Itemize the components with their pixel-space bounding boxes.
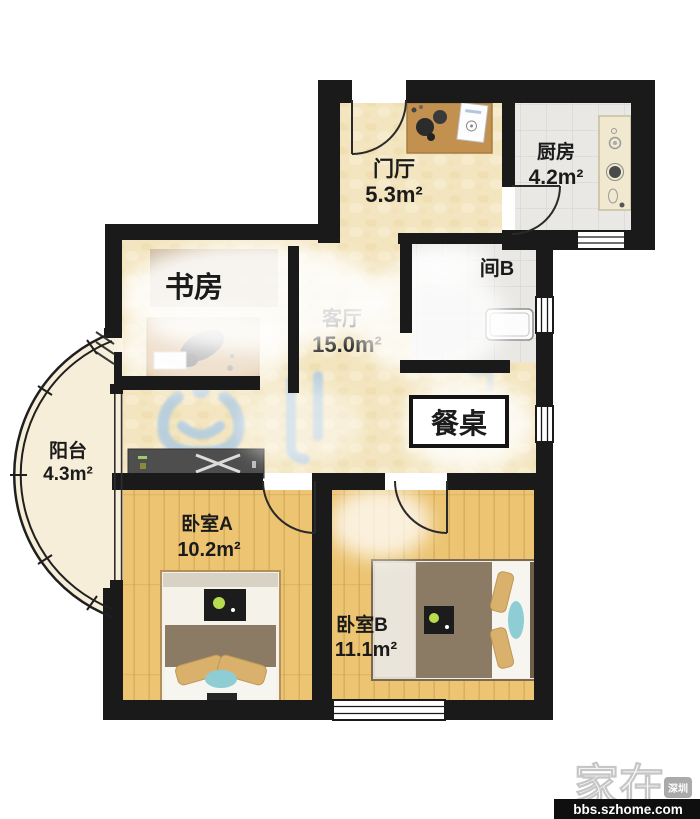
wall (631, 80, 655, 250)
kitchen-area: 4.2m² (529, 166, 584, 189)
bed-gadget (424, 606, 454, 634)
tv-stand-item (140, 463, 146, 469)
bedroom-b-label: 卧室B (336, 613, 388, 636)
dining-table-label: 餐桌 (431, 408, 487, 439)
balcony-door-stub (110, 384, 123, 394)
wall (398, 233, 504, 244)
bathroom-b-label: 间B (480, 257, 514, 280)
bed-b (372, 560, 538, 680)
kitchen-label: 厨房 (537, 140, 575, 163)
szhome-url-text: bbs.szhome.com (573, 802, 683, 817)
tv-stand-item (138, 456, 147, 459)
blur-blob (238, 385, 362, 465)
desk-pad (457, 103, 488, 143)
wall (103, 700, 333, 720)
hall-desk (407, 103, 492, 153)
bed-gadget (429, 613, 439, 623)
floor-plan-svg: 客厅 15.0m² (0, 0, 700, 819)
bedroom-a-label: 卧室A (181, 512, 233, 535)
dining-table-callout: 餐桌 (411, 397, 507, 446)
bed-cushion (508, 601, 524, 639)
wall (502, 95, 515, 187)
desk-item (419, 105, 423, 109)
szhome-badge-text: 深圳 (668, 782, 688, 795)
balcony-label: 阳台 (49, 439, 87, 462)
window-east-lower (536, 406, 553, 442)
window-bedroom-b-south (333, 700, 445, 720)
entry-hall-area: 5.3m² (365, 182, 422, 207)
kitchen-counter (599, 116, 631, 210)
szhome-watermark: 家在 深圳 bbs.szhome.com (554, 760, 700, 819)
wall (536, 248, 553, 297)
bed-gadget (213, 597, 225, 609)
wall (447, 473, 553, 490)
tv-stand-item (252, 461, 256, 468)
entry-hall-label: 门厅 (373, 157, 415, 181)
wall (105, 224, 323, 240)
floor-plan-page: 客厅 15.0m² (0, 0, 700, 819)
wall (445, 700, 553, 720)
faucet-icon (620, 203, 625, 208)
balcony-door-stub (110, 580, 123, 590)
desk-item (412, 108, 417, 113)
wall (114, 376, 260, 390)
bed-a (161, 571, 280, 708)
wall (318, 80, 340, 243)
bed-gadget (445, 625, 449, 629)
wall (536, 442, 553, 475)
bed-gadget (231, 608, 235, 612)
blur-blob (400, 244, 490, 282)
bed-gadget (204, 589, 246, 621)
wall (104, 328, 122, 338)
bedroom-a-area: 10.2m² (177, 539, 241, 561)
study-label: 书房 (165, 271, 223, 304)
desk-item (427, 133, 435, 141)
wall (400, 360, 510, 373)
wall (288, 246, 299, 393)
bedroom-b-area: 11.1m² (335, 639, 398, 661)
wall (105, 224, 122, 334)
window-kitchen-south (577, 231, 625, 249)
desk-item (433, 110, 447, 124)
window-east-upper (536, 297, 553, 333)
stove-burner-icon (609, 166, 621, 178)
wall (400, 243, 412, 333)
wall (534, 473, 553, 720)
wall (112, 473, 263, 490)
wall (536, 333, 553, 406)
bed-headboard (163, 573, 278, 587)
bed-cushion (205, 670, 237, 688)
sink-icon (613, 141, 617, 145)
wall (406, 80, 655, 103)
balcony-area: 4.3m² (43, 464, 93, 485)
wall (625, 230, 655, 250)
